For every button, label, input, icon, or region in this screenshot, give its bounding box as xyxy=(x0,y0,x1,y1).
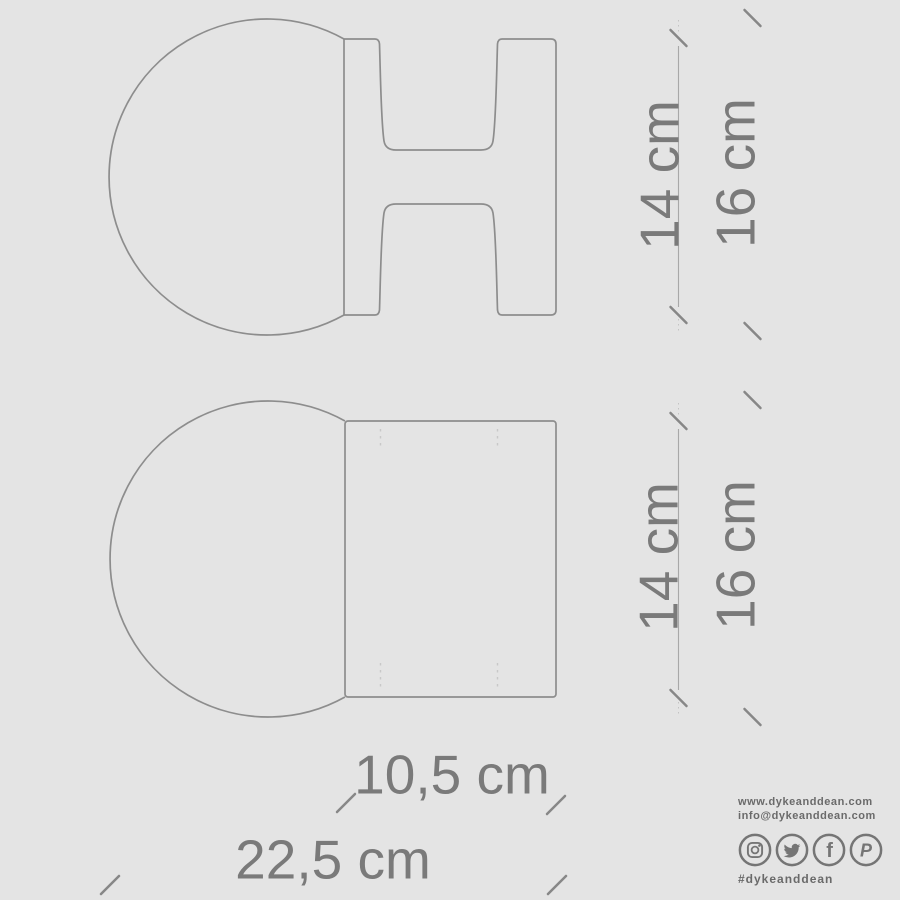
sphere-outline-top xyxy=(109,19,344,335)
knob-profile-outline xyxy=(344,39,556,315)
twitter-icon[interactable] xyxy=(775,833,809,867)
email-link[interactable]: info@dykeanddean.com xyxy=(738,809,883,823)
hashtag-label: #dykeanddean xyxy=(738,872,883,886)
facebook-icon[interactable]: f xyxy=(812,833,846,867)
technical-drawing-canvas: 14 cm 16 cm 14 cm 16 cm 10,5 cm 22,5 cm … xyxy=(0,0,900,900)
pinterest-icon[interactable]: P xyxy=(849,833,883,867)
dim-label-top-outer-height: 16 cm xyxy=(709,98,764,248)
knob-body-outline xyxy=(345,421,556,697)
branding-block: www.dykeanddean.com info@dykeanddean.com… xyxy=(738,795,883,886)
pinterest-glyph: P xyxy=(860,841,873,861)
dim-label-top-inner-height: 14 cm xyxy=(633,100,688,250)
instagram-icon[interactable] xyxy=(738,833,772,867)
social-icons-row: f P xyxy=(738,833,883,867)
dim-label-width-body: 10,5 cm xyxy=(354,748,550,803)
facebook-glyph: f xyxy=(826,840,833,862)
dim-label-bottom-inner-height: 14 cm xyxy=(632,482,687,632)
sphere-outline-bottom xyxy=(110,401,345,717)
hidden-edge-lines xyxy=(381,429,498,690)
dim-label-width-total: 22,5 cm xyxy=(235,833,431,888)
website-link[interactable]: www.dykeanddean.com xyxy=(738,795,883,809)
dim-label-bottom-outer-height: 16 cm xyxy=(709,480,764,630)
